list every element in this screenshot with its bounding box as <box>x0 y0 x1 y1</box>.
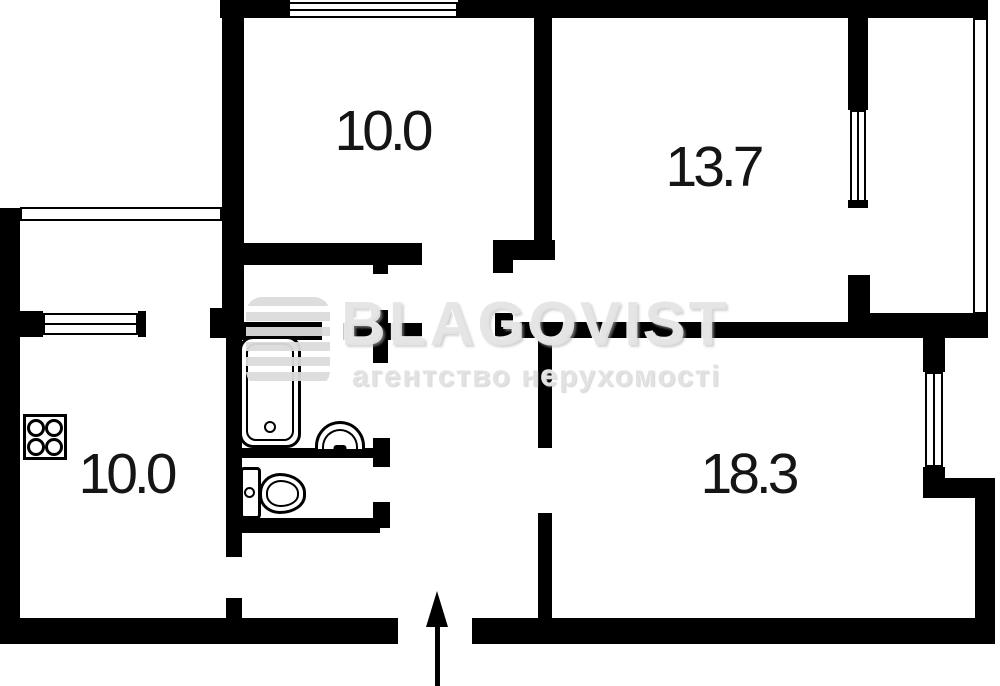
wall <box>242 448 373 458</box>
wall <box>458 0 988 18</box>
bathtub-icon <box>239 336 301 448</box>
stove-burner-icon <box>27 419 45 437</box>
stove-burner-icon <box>45 438 63 456</box>
bathtub-drain-icon <box>264 421 276 433</box>
stove-burner-icon <box>45 419 63 437</box>
wall <box>848 18 868 110</box>
window-icon <box>20 207 222 221</box>
wall <box>848 313 988 338</box>
room-area-label-top-left-room: 10.0 <box>335 98 430 164</box>
wall <box>538 513 552 623</box>
wall <box>238 518 380 533</box>
window-mid-line <box>933 374 935 465</box>
wall <box>373 265 388 274</box>
wall <box>244 243 422 265</box>
wall <box>0 208 20 644</box>
toilet-flush-icon <box>244 487 255 498</box>
entrance-arrow-icon <box>426 591 448 627</box>
stove-burner-icon <box>27 438 45 456</box>
wall <box>20 311 43 337</box>
wall <box>493 240 513 273</box>
wall <box>538 338 552 448</box>
room-area-label-kitchen: 10.0 <box>79 441 174 507</box>
wall <box>0 618 398 644</box>
window-mid-line <box>290 9 456 11</box>
window-icon <box>43 313 138 335</box>
sink-icon <box>315 421 365 449</box>
window-mid-line <box>857 112 859 200</box>
wall <box>373 438 390 467</box>
wall <box>472 618 995 644</box>
stove-icon <box>23 414 67 460</box>
floor-plan: 10.013.710.018.3 BLAGOVIST агентство нер… <box>0 0 1000 686</box>
room-area-label-top-right-room: 13.7 <box>666 134 761 200</box>
wall <box>220 0 290 18</box>
wall <box>222 18 244 310</box>
window-icon <box>850 110 866 202</box>
wall <box>923 338 945 372</box>
sink-tap-icon <box>334 445 347 456</box>
wall <box>138 311 146 337</box>
window-icon <box>973 18 988 314</box>
wall <box>495 322 848 338</box>
wall <box>226 598 242 620</box>
window-mid-line <box>45 323 136 325</box>
watermark-subtitle: агентство нерухомості <box>352 362 721 392</box>
entrance-arrow-shaft <box>435 623 440 686</box>
room-area-label-bottom-right-room: 18.3 <box>701 441 796 507</box>
window-icon <box>288 2 458 18</box>
wall <box>534 18 552 258</box>
toilet-bowl-icon <box>259 473 306 514</box>
window-icon <box>925 372 943 467</box>
wall <box>373 310 388 363</box>
toilet-bowl-inner-outline <box>266 480 299 507</box>
